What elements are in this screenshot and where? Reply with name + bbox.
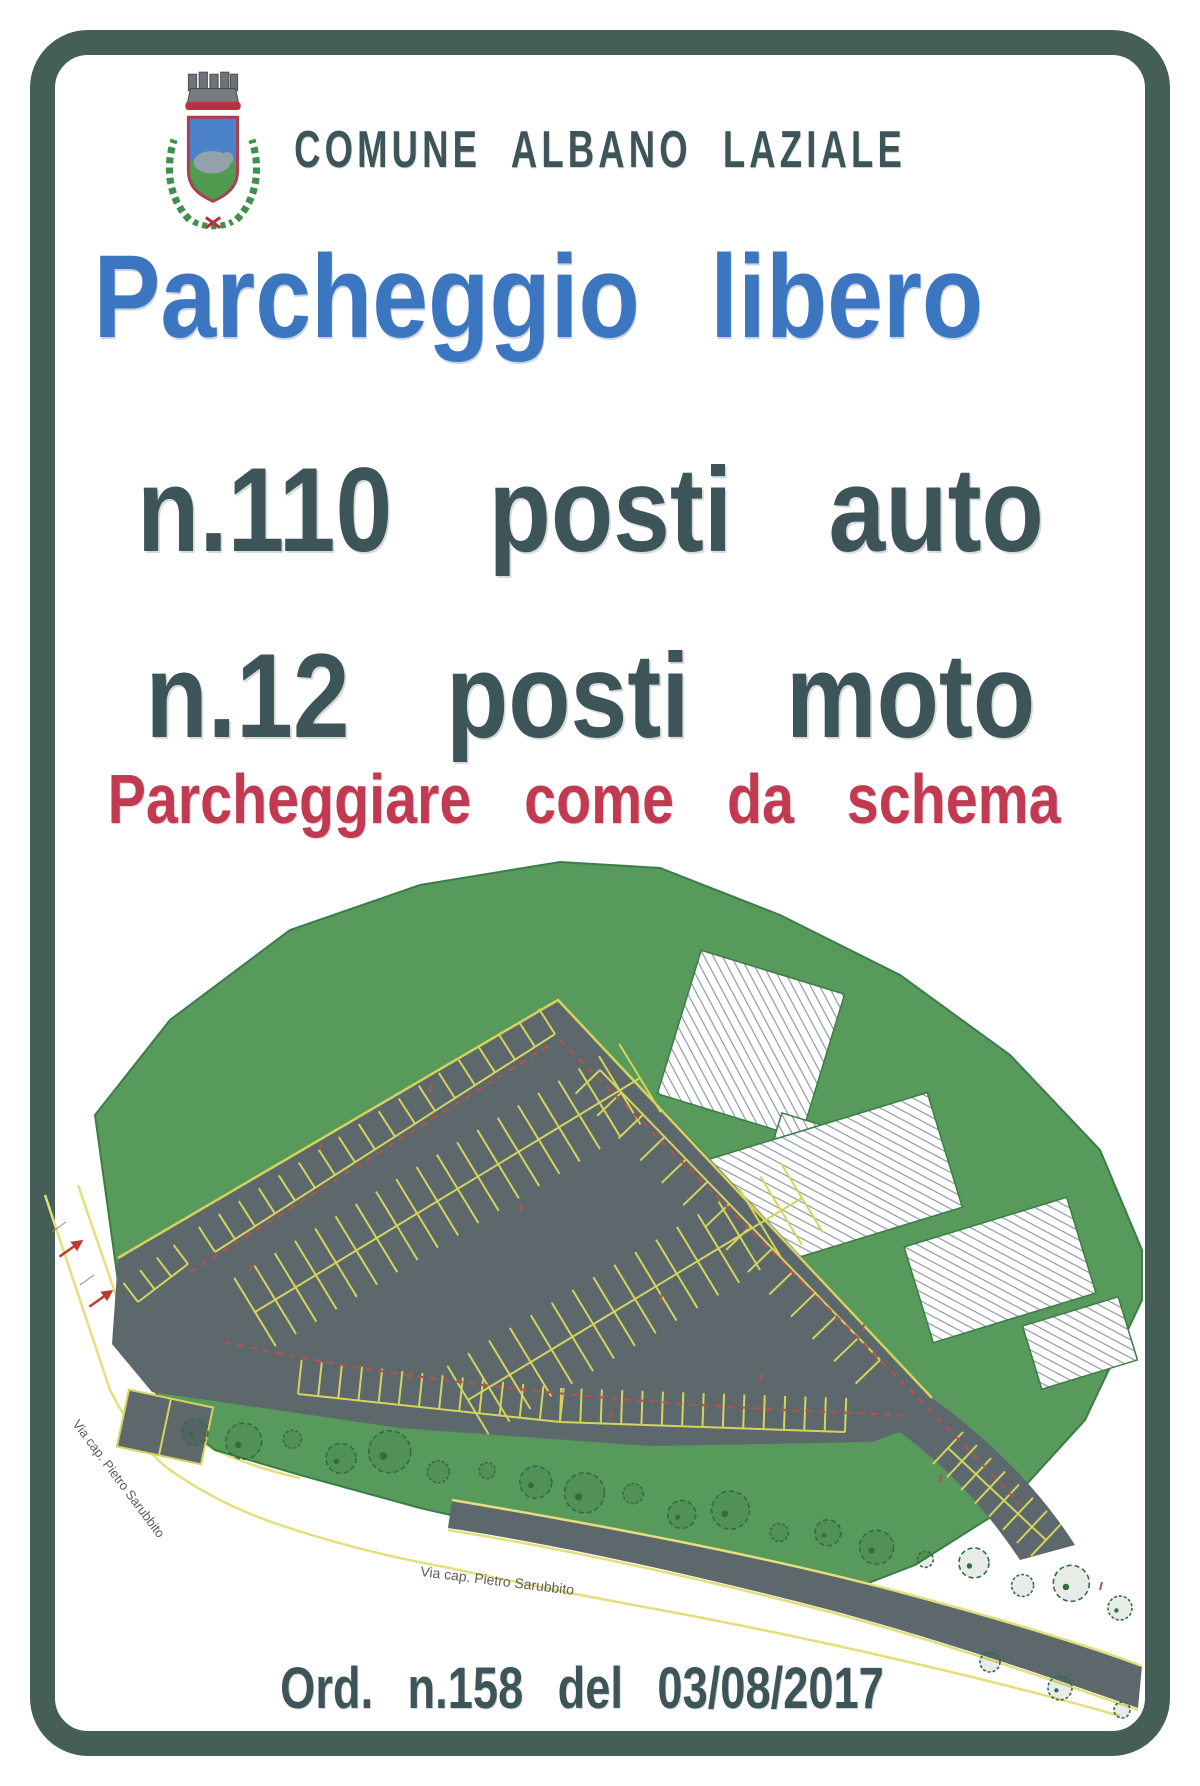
tree-icon	[1053, 1565, 1089, 1601]
tree-icon	[815, 1520, 841, 1546]
parking-scheme-map: Via cap. Pietro Sarubbito Via cap. Pietr…	[40, 850, 1150, 1730]
tree-icon	[326, 1443, 356, 1473]
tree-dot	[235, 1442, 241, 1448]
tree-icon	[182, 1419, 208, 1445]
tree-dot	[868, 1548, 874, 1554]
car-spaces-text: n.110 posti auto	[137, 450, 1044, 570]
tree-icon	[712, 1491, 750, 1529]
tree-dot	[675, 1515, 680, 1520]
tree-dot	[528, 1483, 534, 1489]
tree-icon	[770, 1523, 788, 1541]
tree-icon	[564, 1473, 604, 1513]
red-tick-mark	[1100, 1582, 1102, 1590]
tree-icon	[283, 1430, 301, 1448]
tree-dot	[380, 1452, 388, 1460]
ordinance-note: Ord. n.158 del 03/08/2017	[0, 1660, 1182, 1718]
tree-dot	[967, 1563, 972, 1568]
municipality-name: COMUNE ALBANO LAZIALE	[0, 124, 1200, 176]
tree-icon	[668, 1500, 696, 1528]
moto-spaces-text: n.12 posti moto	[145, 636, 1035, 756]
moto-spaces-line: n.12 posti moto	[0, 636, 1190, 756]
tree-icon	[369, 1431, 411, 1473]
tree-icon	[427, 1461, 449, 1483]
tree-dot	[1063, 1584, 1069, 1590]
municipality-name-text: COMUNE ALBANO LAZIALE	[294, 124, 906, 176]
crest-crown-icon	[185, 72, 240, 110]
car-spaces-line: n.110 posti auto	[0, 450, 1190, 570]
poster-title-text: Parcheggio libero	[93, 238, 983, 356]
ordinance-text: Ord. n.158 del 03/08/2017	[280, 1660, 884, 1718]
tree-icon	[226, 1423, 262, 1459]
tree-dot	[575, 1493, 582, 1500]
parking-instruction: Parcheggiare come da schema	[0, 764, 1184, 834]
tree-icon	[520, 1466, 552, 1498]
tree-icon	[479, 1462, 495, 1478]
tree-dot	[334, 1459, 339, 1464]
tree-icon	[1108, 1596, 1132, 1620]
street-label-bottom: Via cap. Pietro Sarubbito	[420, 1563, 576, 1598]
tree-icon	[860, 1530, 894, 1564]
tree-dot	[1114, 1608, 1118, 1612]
parking-instruction-text: Parcheggiare come da schema	[108, 764, 1061, 834]
tree-icon	[623, 1484, 643, 1504]
parking-notice-poster: COMUNE ALBANO LAZIALE Parcheggio libero …	[0, 0, 1200, 1786]
tree-dot	[822, 1533, 827, 1538]
tree-icon	[917, 1551, 933, 1567]
poster-title: Parcheggio libero	[0, 238, 1138, 356]
parking-scheme-drawing: Via cap. Pietro Sarubbito Via cap. Pietr…	[40, 850, 1150, 1730]
tree-dot	[721, 1510, 728, 1517]
tree-icon	[959, 1548, 989, 1578]
tree-icon	[1012, 1575, 1034, 1597]
tree-dot	[189, 1432, 194, 1437]
